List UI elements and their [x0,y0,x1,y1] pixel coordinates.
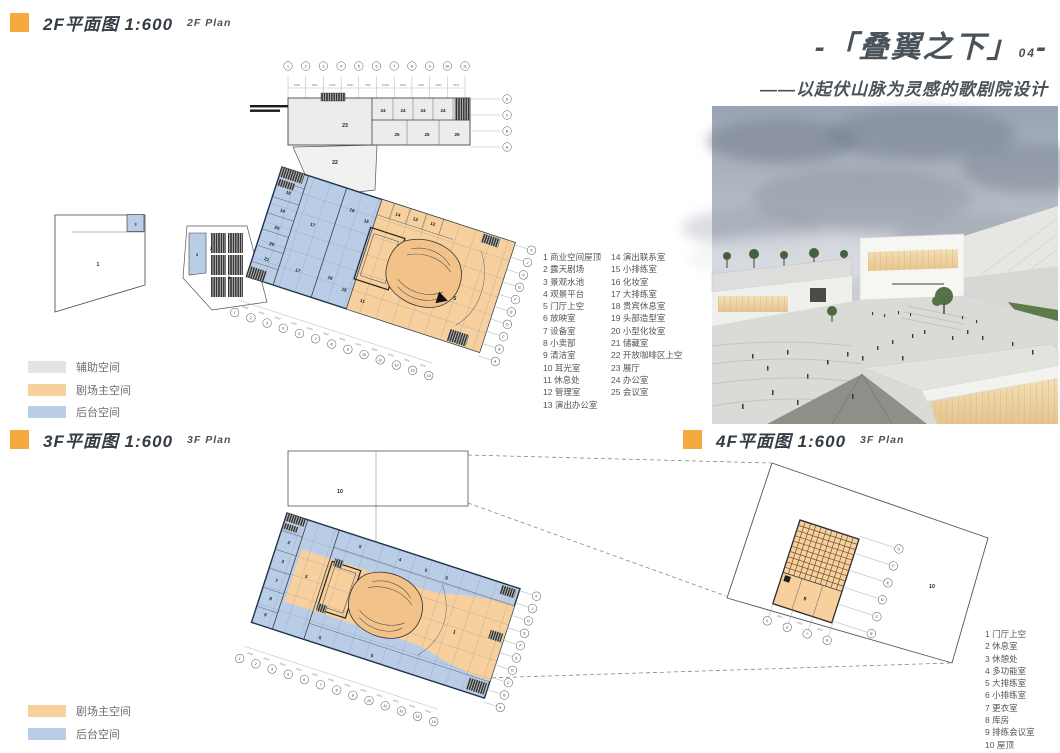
svg-text:8400: 8400 [436,83,442,87]
svg-text:24: 24 [420,108,426,113]
room-list-item: 24 办公室 [611,374,682,386]
room-list-item: 5 门厅上空 [543,300,611,312]
room-list-item: 5 大排练室 [985,677,1035,689]
svg-text:8400: 8400 [360,688,367,694]
section-header-3f: 3F平面图 1:600 3F Plan [10,427,231,452]
room-list-item: 21 储藏室 [611,337,682,349]
project-subtitle: ——以起伏山脉为灵感的歌剧院设计 [760,75,1048,100]
room-list-item: 25 会议室 [611,386,682,398]
section-header-2f: 2F平面图 1:600 2F Plan [10,10,231,35]
svg-text:3950: 3950 [776,614,783,620]
svg-text:23: 23 [342,123,348,129]
project-title-suffix: - [1036,31,1048,64]
main-theatre-block-2f: 1819202021171716151615141312115 84008400… [229,163,537,399]
svg-text:22: 22 [332,160,338,166]
room-list-item: 1 门厅上空 [985,628,1035,640]
svg-text:1: 1 [97,262,100,268]
svg-text:2: 2 [305,64,307,68]
room-list-item: 4 观景平台 [543,288,611,300]
section-title-2f: 2F平面图 1:600 [43,10,173,35]
svg-text:8400: 8400 [339,336,346,342]
svg-text:5: 5 [358,64,360,68]
room-list-item: 7 设备室 [543,325,611,337]
svg-text:C: C [506,113,509,117]
section-title-3f: 3F平面图 1:600 [43,427,173,452]
project-title-block: -「叠翼之下」04- ——以起伏山脉为灵感的歌剧院设计 [760,22,1048,100]
svg-text:24: 24 [400,108,406,113]
svg-text:10: 10 [445,64,449,68]
svg-text:8400: 8400 [404,357,411,363]
svg-text:8400: 8400 [263,656,270,662]
room-list-item: 8 小卖部 [543,337,611,349]
room-list-4f-col: 1 门厅上空2 休息室3 休憩处4 多功能室5 大排练室6 小排练室7 更衣室8… [985,628,1035,751]
svg-text:8400: 8400 [344,682,351,688]
room-list-item: 16 化妆室 [611,276,682,288]
room-list-item: 7 更衣室 [985,702,1035,714]
legend-label-main: 剧场主空间 [76,382,131,398]
room-list-item: 10 屋顶 [985,739,1035,751]
section-marker-icon [10,13,29,32]
legend-2f: 辅助空间 剧场主空间 后台空间 [28,361,131,429]
legend-row-main: 剧场主空间 [28,705,131,717]
svg-text:25: 25 [394,132,400,137]
room-list-item: 2 休息室 [985,640,1035,652]
svg-text:8400: 8400 [453,83,459,87]
svg-text:8400: 8400 [312,83,318,87]
section-subtitle-2f: 2F Plan [187,17,231,29]
room-list-item: 18 贵宾休息室 [611,300,682,312]
svg-text:8400: 8400 [420,363,427,369]
svg-text:8400: 8400 [290,320,297,326]
legend-label-main: 剧场主空间 [76,703,131,719]
room-list-item: 12 管理室 [543,386,611,398]
svg-text:8400: 8400 [242,305,249,311]
svg-text:8400: 8400 [371,347,378,353]
svg-text:8400: 8400 [392,698,399,704]
room-list-2f-col2: 14 演出联系室15 小排练室16 化妆室17 大排练室18 贵宾休息室19 头… [611,251,682,411]
project-title: -「叠翼之下」04- [760,22,1048,66]
legend-row-backstage: 后台空间 [28,406,131,418]
svg-text:8400: 8400 [355,342,362,348]
svg-text:3950: 3950 [816,627,823,633]
legend-row-aux: 辅助空间 [28,361,131,373]
legend-row-main: 剧场主空间 [28,384,131,396]
architectural-render-image [712,106,1058,424]
svg-text:7: 7 [393,64,395,68]
room-list-item: 14 演出联系室 [611,251,682,263]
presentation-board: 2F平面图 1:600 2F Plan -「叠翼之下」04- ——以起伏山脉为灵… [0,0,1060,753]
svg-text:8400: 8400 [307,326,314,332]
svg-text:D: D [506,97,509,101]
room-list-item: 3 休憩处 [985,653,1035,665]
svg-text:8400: 8400 [328,677,335,683]
svg-text:8400: 8400 [295,666,302,672]
room-list-item: 23 展厅 [611,362,682,374]
svg-text:11300: 11300 [382,83,390,87]
grid-bubbles-top: 1234567891011 [284,62,470,71]
room-list-item: 3 景观水池 [543,276,611,288]
legend-row-backstage: 后台空间 [28,728,131,740]
room-list-2f-col1: 1 商业空间屋顶2 露天剧场3 景观水池4 观景平台5 门厅上空6 放映室7 设… [543,251,611,411]
room-list-item: 6 小排练室 [985,689,1035,701]
legend-swatch-orange [28,384,66,396]
svg-text:8400: 8400 [347,83,353,87]
svg-text:8400: 8400 [400,83,406,87]
svg-text:8400: 8400 [247,651,254,657]
legend-3f: 剧场主空间 后台空间 [28,705,131,750]
svg-text:1: 1 [287,64,289,68]
room-list-item: 8 库房 [985,714,1035,726]
svg-text:8: 8 [411,64,413,68]
room-list-item: 17 大排练室 [611,288,682,300]
grid-bubbles-right: DCBA [503,95,512,152]
svg-text:6: 6 [376,64,378,68]
room-list-item: 10 耳光室 [543,362,611,374]
project-title-number: 04 [1019,46,1036,60]
svg-text:8400: 8400 [279,661,286,667]
project-title-text: -「叠翼之下」 [815,31,1019,64]
legend-label-aux: 辅助空间 [76,359,120,375]
svg-text:8400: 8400 [387,352,394,358]
room-list-item: 4 多功能室 [985,665,1035,677]
room-list-item: 11 休息处 [543,374,611,386]
svg-text:10: 10 [337,489,343,495]
svg-text:8400: 8400 [330,83,336,87]
legend-swatch-orange [28,705,66,717]
svg-text:8400: 8400 [294,83,300,87]
room-list-item: 9 清洁室 [543,349,611,361]
svg-text:3: 3 [322,64,324,68]
room-list-item: 22 开放咖啡区上空 [611,349,682,361]
floor-plans-3f-4f: 10 2378955455551 [215,443,1005,753]
svg-text:24: 24 [380,108,386,113]
svg-text:8400: 8400 [258,310,265,316]
svg-text:24: 24 [440,108,446,113]
svg-text:25: 25 [454,132,460,137]
svg-text:7800: 7800 [365,83,371,87]
section-marker-icon [10,430,29,449]
main-theatre-block-3f: 2378955455551 84008400840084008400840084… [234,509,542,745]
room-list-item: 6 放映室 [543,312,611,324]
room-list-2f: 1 商业空间屋顶2 露天剧场3 景观水池4 观景平台5 门厅上空6 放映室7 设… [543,251,682,411]
legend-label-backstage: 后台空间 [76,404,120,420]
room-list-item: 19 头部造型室 [611,312,682,324]
svg-text:9: 9 [429,64,431,68]
svg-text:4: 4 [340,64,342,68]
svg-text:8400: 8400 [323,331,330,337]
svg-text:3950: 3950 [796,620,803,626]
svg-text:8400: 8400 [425,709,432,715]
legend-swatch-blue [28,406,66,418]
svg-text:25: 25 [424,132,430,137]
legend-swatch-blue [28,728,66,740]
room-list-item: 2 露天剧场 [543,263,611,275]
legend-label-backstage: 后台空间 [76,726,120,742]
svg-text:8400: 8400 [376,693,383,699]
svg-text:8400: 8400 [409,703,416,709]
room-list-item: 13 演出办公室 [543,399,611,411]
room-list-4f: 1 门厅上空2 休息室3 休憩处4 多功能室5 大排练室6 小排练室7 更衣室8… [985,628,1035,751]
legend-swatch-gray [28,361,66,373]
room-list-item: 15 小排练室 [611,263,682,275]
svg-text:8400: 8400 [274,315,281,321]
room-list-item: 9 排练会议室 [985,726,1035,738]
svg-text:8400: 8400 [312,672,319,678]
room-list-item: 20 小型化妆室 [611,325,682,337]
room-list-item: 1 商业空间屋顶 [543,251,611,263]
svg-text:8400: 8400 [418,83,424,87]
svg-text:11: 11 [463,64,467,68]
svg-text:10: 10 [929,584,935,590]
